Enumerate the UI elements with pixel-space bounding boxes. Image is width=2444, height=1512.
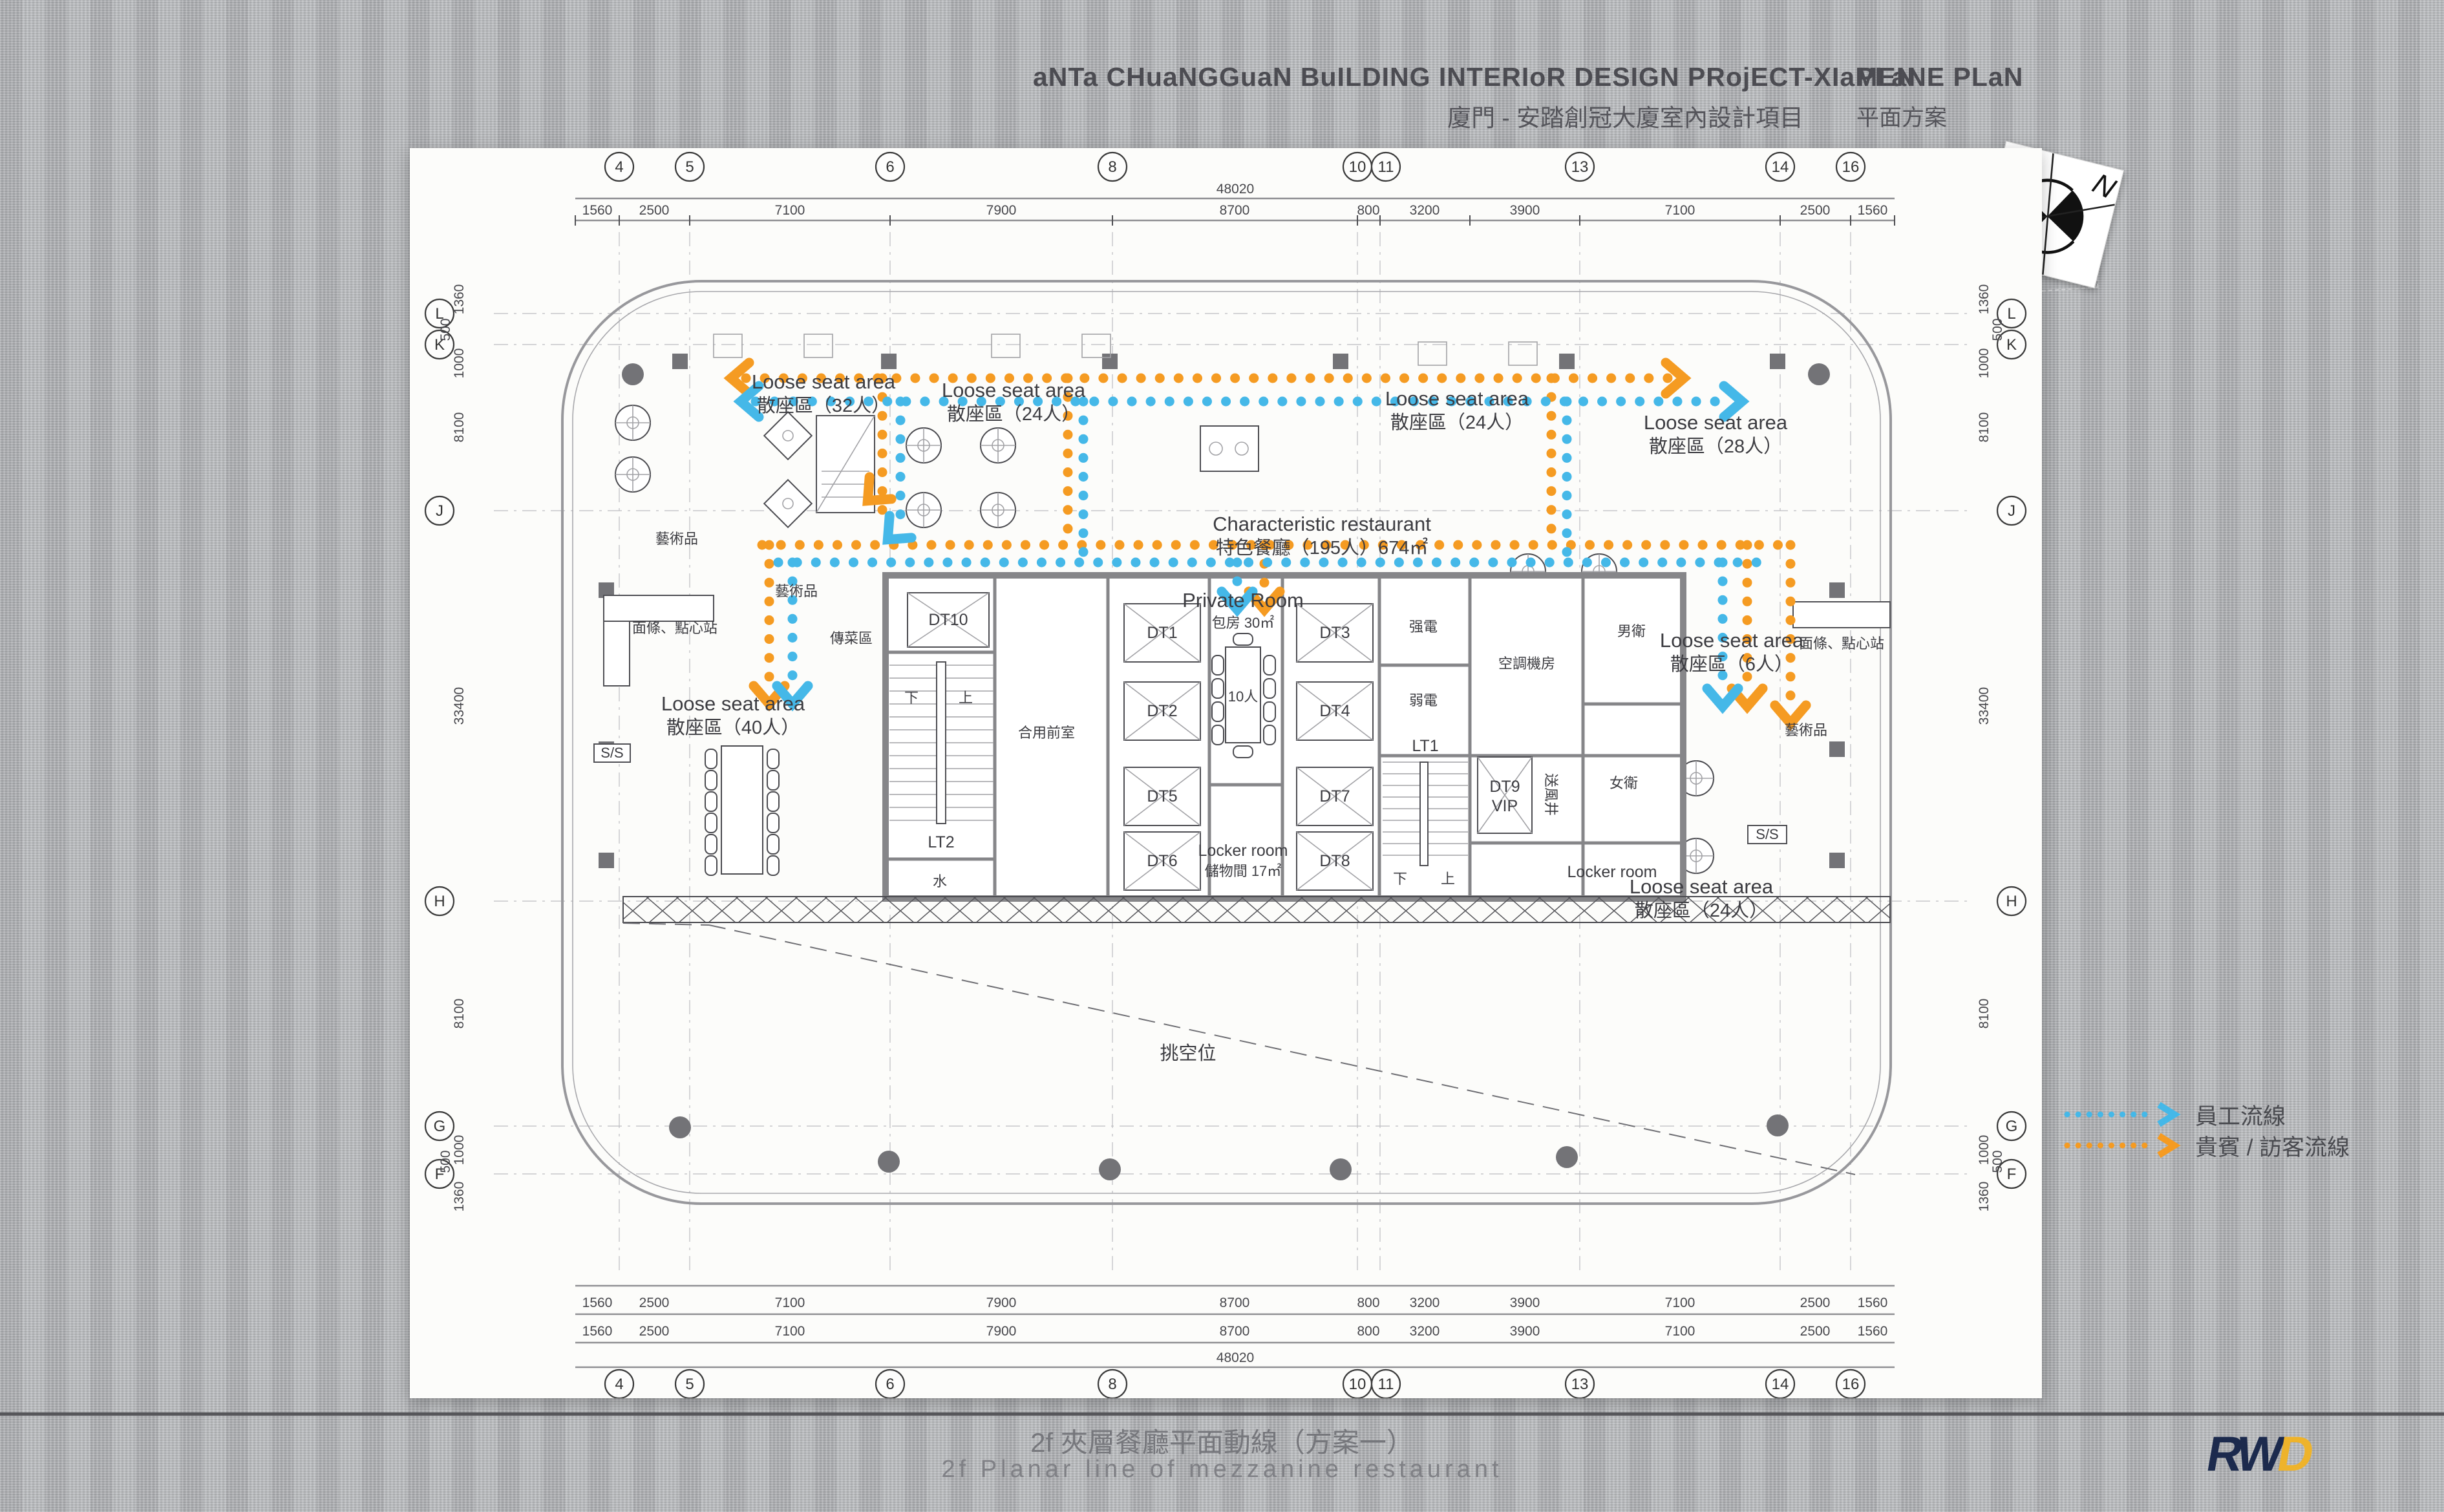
svg-text:16: 16: [1842, 158, 1860, 176]
guest-flow-arrow-icon: [2062, 1131, 2191, 1160]
staff-flow-arrow-icon: [2062, 1100, 2191, 1129]
svg-text:特色餐廳（195人）674㎡: 特色餐廳（195人）674㎡: [1216, 537, 1429, 559]
svg-text:800: 800: [1357, 203, 1379, 218]
svg-text:8100: 8100: [452, 999, 467, 1029]
svg-text:G: G: [434, 1118, 446, 1135]
svg-text:500: 500: [438, 1150, 453, 1173]
label-loose40: Loose seat area: [661, 692, 805, 715]
floor-plan-sheet: 48020 1560 2500 7100 7900 8700 800 3200 …: [410, 148, 2042, 1398]
svg-text:LT1: LT1: [1412, 737, 1438, 755]
svg-text:3200: 3200: [1410, 1324, 1440, 1339]
sheet-caption-en: 2f Planar line of mezzanine restaurant: [0, 1456, 2444, 1484]
svg-text:送風井: 送風井: [1543, 773, 1559, 816]
svg-text:11: 11: [1378, 1376, 1394, 1393]
label-private-room: Private Room: [1182, 589, 1304, 612]
svg-text:S/S: S/S: [600, 745, 623, 761]
label-void: 挑空位: [1160, 1043, 1216, 1064]
svg-text:8700: 8700: [1220, 203, 1250, 218]
svg-text:7100: 7100: [1665, 203, 1695, 218]
svg-text:800: 800: [1357, 1324, 1379, 1339]
svg-text:包房 30㎡: 包房 30㎡: [1212, 615, 1275, 631]
svg-text:5: 5: [685, 158, 694, 176]
svg-text:DT10: DT10: [928, 611, 968, 629]
project-title-en: aNTa CHuaNGGuaN BuILDING INTERIoR DESIGN…: [1033, 62, 1809, 92]
svg-text:1560: 1560: [582, 1324, 613, 1339]
svg-text:7100: 7100: [775, 203, 805, 218]
svg-text:藝術品: 藝術品: [1785, 722, 1827, 738]
svg-text:下: 下: [1393, 871, 1407, 887]
svg-text:1360: 1360: [452, 1182, 467, 1212]
label-loose32: Loose seat area: [752, 370, 896, 393]
compass-north-label: N: [2088, 167, 2121, 206]
svg-text:13: 13: [1571, 1376, 1589, 1393]
svg-text:5: 5: [685, 1376, 694, 1393]
legend-staff-label: 員工流線: [2195, 1098, 2286, 1131]
svg-text:1000: 1000: [452, 1135, 467, 1166]
svg-text:DT5: DT5: [1147, 787, 1177, 805]
svg-text:强電: 强電: [1409, 619, 1438, 635]
svg-text:7100: 7100: [1665, 1295, 1695, 1310]
label-locker2: Locker room: [1567, 863, 1657, 881]
label-locker1: Locker room: [1198, 842, 1288, 860]
svg-text:上: 上: [1441, 871, 1455, 887]
svg-text:儲物間 17㎡: 儲物間 17㎡: [1205, 863, 1282, 879]
dimension-string-bottom: 1560 2500 7100 7900 8700 800 3200 3900 7…: [575, 1286, 1895, 1367]
svg-text:男衛: 男衛: [1617, 623, 1646, 639]
svg-text:DT6: DT6: [1147, 852, 1177, 870]
svg-text:10: 10: [1349, 1376, 1366, 1393]
svg-text:33400: 33400: [1977, 687, 1992, 725]
svg-text:K: K: [2006, 336, 2017, 354]
sheet-caption-cn: 2f 夾層餐廳平面動線（方案一）: [0, 1421, 2444, 1460]
svg-text:1000: 1000: [1977, 348, 1992, 379]
svg-text:2500: 2500: [639, 203, 670, 218]
grid-bubbles-bottom: 4 5 6 8 10 11 13 14 16: [605, 1370, 1865, 1398]
svg-text:33400: 33400: [452, 687, 467, 725]
svg-text:1560: 1560: [1858, 203, 1888, 218]
svg-text:800: 800: [1357, 1295, 1379, 1310]
svg-text:1360: 1360: [1977, 1182, 1992, 1212]
label-loose24a: Loose seat area: [942, 379, 1086, 401]
label-restaurant: Characteristic restaurant: [1213, 513, 1431, 535]
svg-text:合用前室: 合用前室: [1018, 725, 1075, 741]
svg-text:LT2: LT2: [928, 833, 954, 851]
svg-text:下: 下: [904, 690, 919, 706]
svg-text:散座區（24人）: 散座區（24人）: [947, 403, 1080, 425]
svg-text:S/S: S/S: [1756, 826, 1778, 842]
legend-guest-row: 貴賓 / 訪客流線: [2062, 1130, 2350, 1161]
svg-text:7900: 7900: [986, 1324, 1017, 1339]
svg-text:散座區（6人）: 散座區（6人）: [1670, 654, 1793, 675]
svg-text:VIP: VIP: [1492, 797, 1518, 815]
slide-background: aNTa CHuaNGGuaN BuILDING INTERIoR DESIGN…: [0, 0, 2444, 1512]
svg-text:DT4: DT4: [1319, 702, 1350, 720]
svg-text:散座區（24人）: 散座區（24人）: [1635, 900, 1768, 921]
legend-staff-row: 員工流線: [2062, 1099, 2350, 1130]
svg-text:500: 500: [1990, 1150, 2005, 1173]
dim-total-bottom: 48020: [1217, 1350, 1254, 1365]
svg-text:16: 16: [1842, 1376, 1860, 1393]
svg-text:3900: 3900: [1510, 203, 1540, 218]
footer-divider: [0, 1412, 2444, 1416]
svg-text:1560: 1560: [582, 203, 613, 218]
circulation-legend: 員工流線 貴賓 / 訪客流線: [2062, 1099, 2350, 1161]
svg-text:4: 4: [615, 158, 623, 176]
svg-text:2500: 2500: [639, 1295, 670, 1310]
svg-text:面條、點心站: 面條、點心站: [1799, 635, 1884, 652]
svg-text:7100: 7100: [775, 1295, 805, 1310]
svg-text:2500: 2500: [1800, 1324, 1831, 1339]
svg-text:水: 水: [933, 873, 947, 889]
svg-text:H: H: [434, 893, 445, 910]
svg-text:女衛: 女衛: [1610, 775, 1638, 791]
svg-text:11: 11: [1378, 158, 1394, 176]
dimension-string-left: 1360 500 1000 8100 33400 8100 1000 500 1…: [438, 284, 467, 1212]
svg-text:2500: 2500: [1800, 203, 1831, 218]
void-zone: [623, 897, 1890, 1175]
svg-text:空調機房: 空調機房: [1498, 655, 1555, 672]
svg-text:1560: 1560: [1858, 1324, 1888, 1339]
label-loose28: Loose seat area: [1644, 411, 1788, 434]
svg-text:DT3: DT3: [1319, 624, 1350, 642]
svg-text:2500: 2500: [1800, 1295, 1831, 1310]
svg-text:散座區（32人）: 散座區（32人）: [757, 395, 890, 416]
legend-guest-label: 貴賓 / 訪客流線: [2195, 1129, 2350, 1162]
svg-text:DT7: DT7: [1319, 787, 1350, 805]
svg-text:6: 6: [886, 158, 894, 176]
svg-text:14: 14: [1772, 158, 1789, 176]
dimension-string-right: 1360 500 1000 8100 33400 8100 1000 500 1…: [1977, 284, 2005, 1212]
svg-text:L: L: [2007, 305, 2015, 323]
label-loose6: Loose seat area: [1660, 629, 1804, 652]
svg-text:8100: 8100: [452, 412, 467, 443]
plan-title-cn: 平面方案: [1856, 100, 1947, 133]
svg-text:3900: 3900: [1510, 1295, 1540, 1310]
svg-text:F: F: [2007, 1166, 2017, 1183]
svg-text:4: 4: [615, 1376, 623, 1393]
svg-text:DT1: DT1: [1147, 624, 1177, 642]
svg-text:8: 8: [1108, 158, 1116, 176]
svg-text:3200: 3200: [1410, 1295, 1440, 1310]
svg-text:上: 上: [959, 690, 973, 706]
svg-text:13: 13: [1571, 158, 1589, 176]
svg-text:J: J: [436, 502, 443, 520]
svg-text:6: 6: [886, 1376, 894, 1393]
svg-text:藝術品: 藝術品: [775, 583, 818, 599]
grid-bubbles-top: 4 5 6 8 10 11 13 14 16: [605, 153, 1865, 181]
svg-text:面條、點心站: 面條、點心站: [632, 620, 717, 636]
svg-text:1000: 1000: [1977, 1135, 1992, 1166]
svg-text:1560: 1560: [1858, 1295, 1888, 1310]
svg-text:500: 500: [1990, 318, 2005, 341]
svg-text:傳菜區: 傳菜區: [830, 630, 873, 646]
svg-text:14: 14: [1772, 1376, 1789, 1393]
svg-text:1000: 1000: [452, 348, 467, 379]
rwd-logo: RWD: [2202, 1426, 2313, 1482]
svg-text:7100: 7100: [775, 1324, 805, 1339]
dimension-string-top: 48020 1560 2500 7100 7900 8700 800 3200 …: [575, 182, 1895, 226]
svg-text:藝術品: 藝術品: [655, 531, 698, 547]
svg-text:散座區（28人）: 散座區（28人）: [1649, 436, 1782, 457]
svg-text:3900: 3900: [1510, 1324, 1540, 1339]
svg-text:10: 10: [1349, 158, 1366, 176]
grid-bubbles-left: L K J H G F: [425, 299, 454, 1188]
svg-text:8100: 8100: [1977, 412, 1992, 443]
svg-text:1360: 1360: [452, 284, 467, 315]
svg-text:7900: 7900: [986, 1295, 1017, 1310]
svg-text:10人: 10人: [1228, 688, 1258, 705]
svg-text:7100: 7100: [1665, 1324, 1695, 1339]
svg-text:7900: 7900: [986, 203, 1017, 218]
svg-text:DT8: DT8: [1319, 852, 1350, 870]
svg-text:散座區（24人）: 散座區（24人）: [1390, 412, 1524, 433]
svg-text:500: 500: [438, 318, 453, 341]
svg-text:1560: 1560: [582, 1295, 613, 1310]
svg-text:J: J: [2008, 502, 2015, 520]
svg-text:G: G: [2006, 1118, 2018, 1135]
project-title-cn: 廈門 - 安踏創冠大廈室內設計項目: [1033, 98, 1803, 133]
svg-text:8700: 8700: [1220, 1324, 1250, 1339]
svg-text:3200: 3200: [1410, 203, 1440, 218]
svg-text:DT2: DT2: [1147, 702, 1177, 720]
svg-text:散座區（40人）: 散座區（40人）: [666, 717, 800, 738]
grid-bubbles-right: L K J H G F: [1997, 299, 2026, 1188]
svg-text:8700: 8700: [1220, 1295, 1250, 1310]
svg-text:H: H: [2006, 893, 2017, 910]
svg-text:1360: 1360: [1977, 284, 1992, 315]
label-loose24b: Loose seat area: [1385, 387, 1529, 410]
svg-text:2500: 2500: [639, 1324, 670, 1339]
dim-total-top: 48020: [1217, 182, 1254, 197]
svg-text:8: 8: [1108, 1376, 1116, 1393]
svg-text:DT9: DT9: [1489, 778, 1520, 796]
plan-title-en: PLaNE PLaN: [1856, 62, 2023, 92]
svg-text:弱電: 弱電: [1409, 692, 1438, 708]
floor-plan-drawing: 48020 1560 2500 7100 7900 8700 800 3200 …: [410, 148, 2042, 1398]
svg-text:8100: 8100: [1977, 999, 1992, 1029]
